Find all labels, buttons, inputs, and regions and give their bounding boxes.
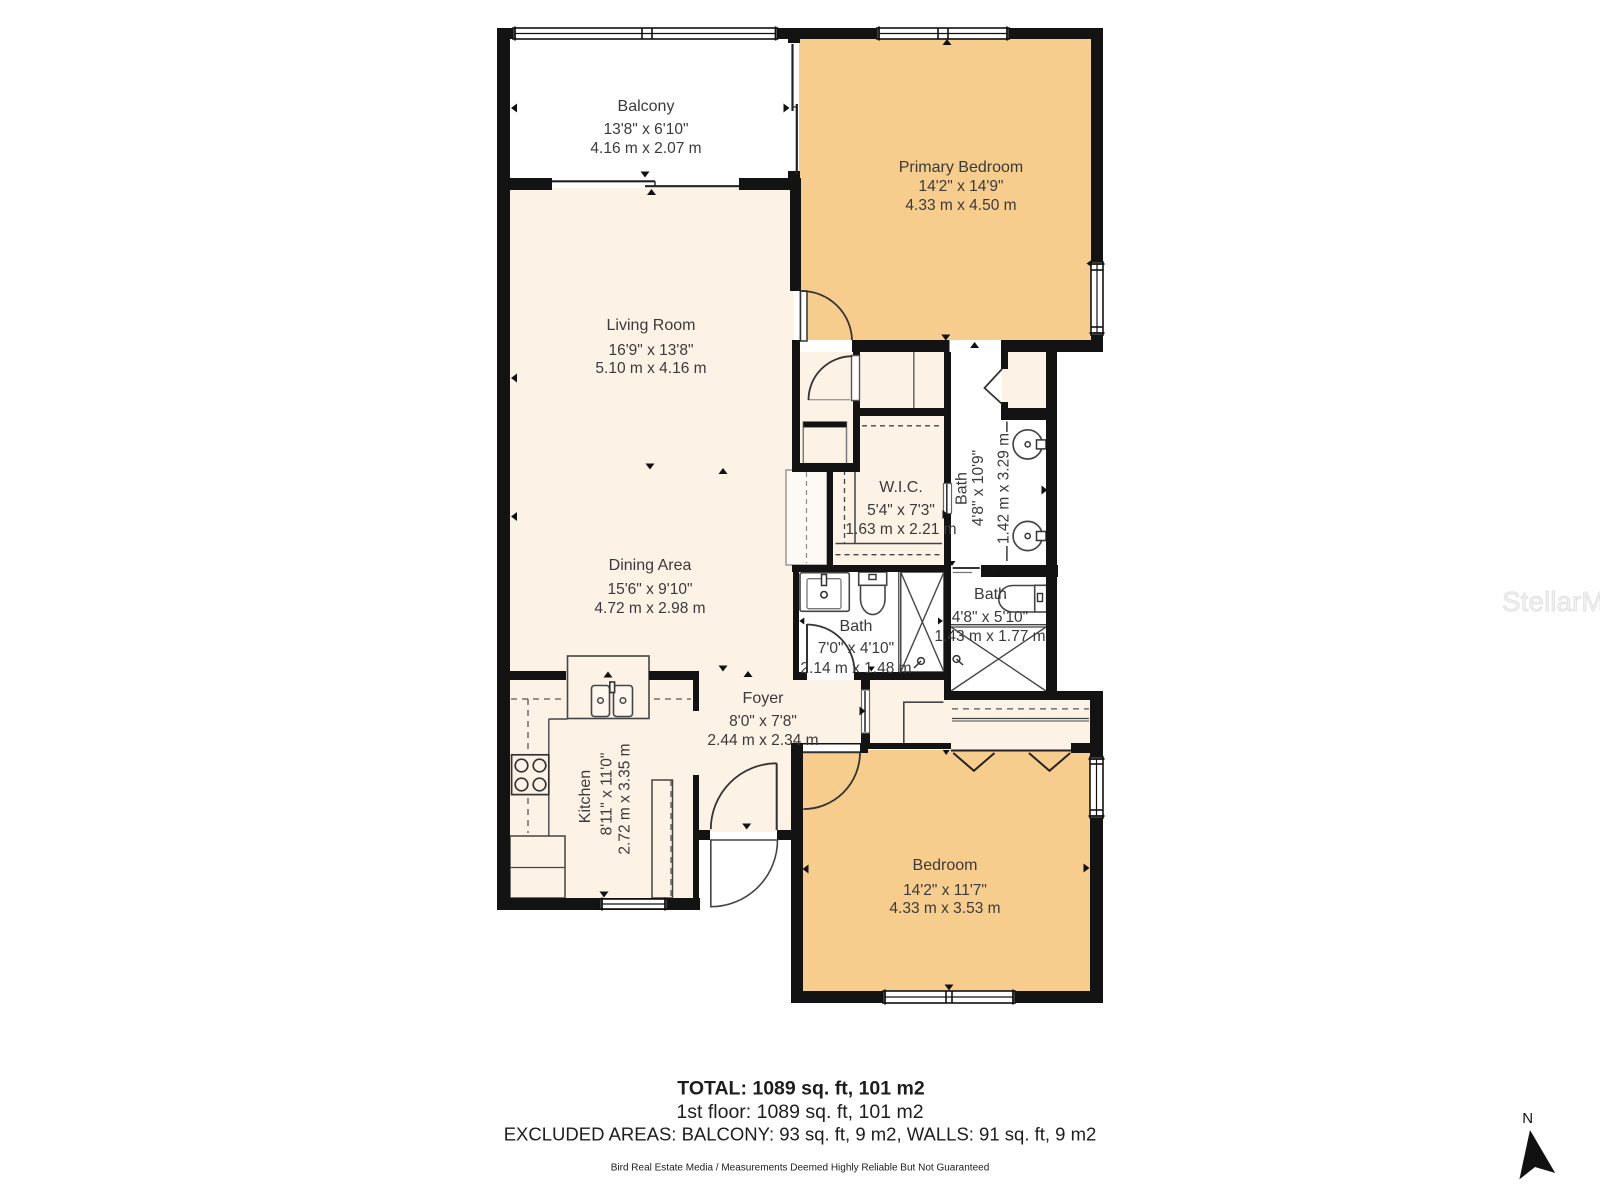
svg-text:TOTAL: 1089 sq. ft, 101 m2: TOTAL: 1089 sq. ft, 101 m2 bbox=[677, 1078, 925, 1100]
svg-text:1st floor: 1089 sq. ft, 101 m2: 1st floor: 1089 sq. ft, 101 m2 bbox=[676, 1101, 923, 1123]
svg-text:2.44 m x 2.34 m: 2.44 m x 2.34 m bbox=[707, 732, 818, 749]
svg-text:Living Room: Living Room bbox=[607, 317, 696, 334]
svg-text:Foyer: Foyer bbox=[743, 690, 785, 707]
svg-text:4.33 m x 3.53 m: 4.33 m x 3.53 m bbox=[889, 900, 1000, 917]
svg-text:1.42 m x 3.29 m: 1.42 m x 3.29 m bbox=[996, 433, 1013, 544]
svg-text:2.72 m x 3.35 m: 2.72 m x 3.35 m bbox=[617, 743, 634, 854]
svg-text:Kitchen: Kitchen bbox=[577, 770, 594, 823]
svg-text:1.63 m x 2.21 m: 1.63 m x 2.21 m bbox=[845, 521, 956, 538]
svg-text:7'0" x 4'10": 7'0" x 4'10" bbox=[818, 640, 894, 657]
svg-text:13'8" x 6'10": 13'8" x 6'10" bbox=[603, 121, 688, 138]
svg-text:16'9" x 13'8": 16'9" x 13'8" bbox=[608, 342, 693, 359]
svg-text:Primary Bedroom: Primary Bedroom bbox=[899, 159, 1023, 176]
svg-text:StellarMLS: StellarMLS bbox=[1502, 586, 1600, 617]
svg-text:Bedroom: Bedroom bbox=[913, 857, 978, 874]
svg-text:N: N bbox=[1522, 1110, 1533, 1127]
svg-text:4.16 m x 2.07 m: 4.16 m x 2.07 m bbox=[590, 140, 701, 157]
svg-text:EXCLUDED AREAS: BALCONY: 93 sq: EXCLUDED AREAS: BALCONY: 93 sq. ft, 9 m2… bbox=[504, 1124, 1097, 1145]
svg-text:5.10 m x 4.16 m: 5.10 m x 4.16 m bbox=[595, 360, 706, 377]
svg-text:Bath: Bath bbox=[974, 586, 1007, 603]
svg-text:Bird Real Estate Media / Measu: Bird Real Estate Media / Measurements De… bbox=[611, 1163, 990, 1174]
svg-text:8'0" x 7'8": 8'0" x 7'8" bbox=[729, 713, 797, 730]
svg-text:4'8" x 10'9": 4'8" x 10'9" bbox=[970, 450, 987, 526]
svg-text:Balcony: Balcony bbox=[618, 98, 675, 115]
svg-text:4.33 m x 4.50 m: 4.33 m x 4.50 m bbox=[905, 197, 1016, 214]
svg-text:Bath: Bath bbox=[953, 472, 970, 505]
svg-text:15'6" x 9'10": 15'6" x 9'10" bbox=[607, 581, 692, 598]
svg-text:14'2" x 14'9": 14'2" x 14'9" bbox=[918, 178, 1003, 195]
svg-text:4'8" x 5'10": 4'8" x 5'10" bbox=[952, 609, 1028, 626]
svg-text:1.43 m x 1.77 m: 1.43 m x 1.77 m bbox=[934, 628, 1045, 645]
svg-text:8'11" x 11'0": 8'11" x 11'0" bbox=[599, 753, 616, 836]
svg-text:Bath: Bath bbox=[840, 618, 873, 635]
svg-text:2.14 m x 1.48 m: 2.14 m x 1.48 m bbox=[800, 660, 911, 677]
svg-text:W.I.C.: W.I.C. bbox=[879, 479, 923, 496]
svg-text:14'2" x 11'7": 14'2" x 11'7" bbox=[903, 882, 987, 899]
svg-text:4.72 m x 2.98 m: 4.72 m x 2.98 m bbox=[594, 600, 705, 617]
svg-text:5'4" x 7'3": 5'4" x 7'3" bbox=[867, 502, 935, 519]
svg-text:Dining Area: Dining Area bbox=[609, 557, 692, 574]
